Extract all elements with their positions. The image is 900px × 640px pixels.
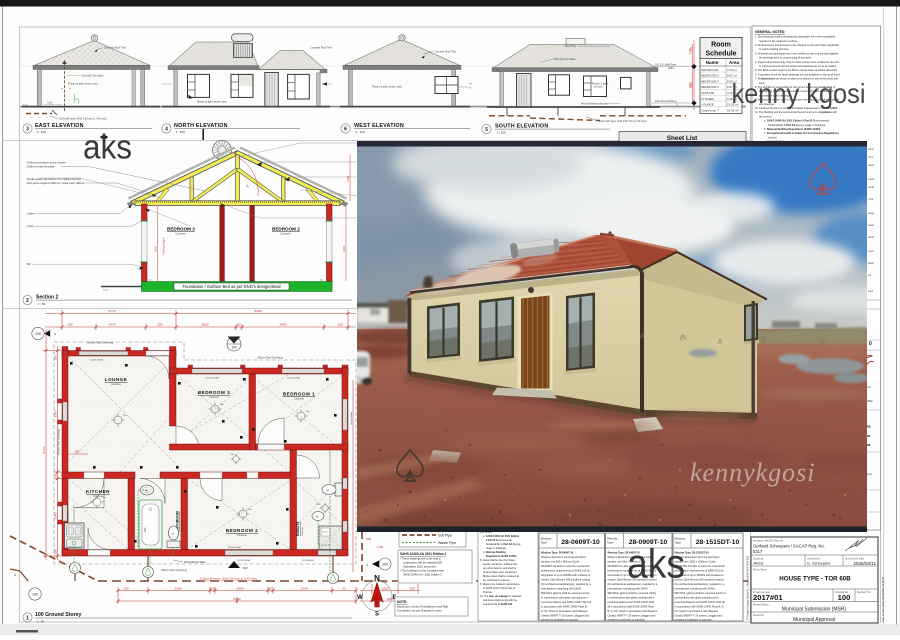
svg-text:any other defects, and shall b: any other defects, and shall be bbox=[483, 567, 517, 570]
svg-text:window, size 600 x 900mm (Code: window, size 600 x 900mm (Code: bbox=[541, 560, 580, 564]
svg-text:BEDROOM 2: BEDROOM 2 bbox=[272, 227, 300, 232]
svg-text:Practice.: Practice. bbox=[483, 591, 493, 594]
svg-text:3770: 3770 bbox=[109, 309, 116, 313]
svg-text:BEDROOM 2: BEDROOM 2 bbox=[226, 528, 258, 533]
svg-text:Wispeco Aluminium top hung alu: Wispeco Aluminium top hung aluminium bbox=[541, 555, 586, 559]
svg-text:1758: 1758 bbox=[346, 175, 350, 182]
svg-text:(Latest): (Latest) bbox=[768, 135, 777, 139]
svg-text:1 : 100: 1 : 100 bbox=[37, 130, 47, 134]
svg-text:to SANS 10137:2013 Code of: to SANS 10137:2013 Code of bbox=[483, 587, 515, 590]
svg-text:LOUNGE: LOUNGE bbox=[105, 377, 128, 382]
svg-text:2017#01: 2017#01 bbox=[753, 593, 783, 602]
svg-text:ENSUITE: ENSUITE bbox=[702, 91, 715, 95]
svg-text:Sheet List: Sheet List bbox=[667, 135, 698, 142]
svg-text:8. Glass shall be free from f: 8. Glass shall be free from flaws, bbox=[480, 559, 516, 562]
svg-text:requirements of SANS 613.: requirements of SANS 613. bbox=[483, 603, 513, 606]
svg-text:(2) 28-1515A1: (2) 28-1515A1 bbox=[205, 377, 220, 380]
svg-text:Sustainability & Part XA Ener: Sustainability & Part XA Energy usage in… bbox=[768, 123, 826, 127]
svg-text:etc.: etc. bbox=[868, 274, 872, 277]
svg-text:150: 150 bbox=[409, 586, 414, 590]
svg-text:all in accordance with SANS 10: all in accordance with SANS 10400 Parts bbox=[608, 605, 655, 609]
svg-text:3.75 m²: 3.75 m² bbox=[727, 68, 737, 72]
svg-text:manufacturer complying with SA: manufacturer complying with SANS bbox=[541, 587, 581, 591]
svg-text:Roof Tiles: Roof Tiles bbox=[565, 45, 577, 48]
svg-text:28-0609T-10) able to resist th: 28-0609T-10) able to resist the mechanic… bbox=[541, 564, 590, 568]
svg-text:JRGS: JRGS bbox=[753, 562, 764, 566]
svg-text:Plaster & paint as per spec.: Plaster & paint as per spec. bbox=[372, 86, 403, 89]
svg-text:Date & Time Stamp 2025/03/11: Date & Time Stamp 2025/03/11 21:48:25 bbox=[882, 576, 885, 622]
svg-text:LOUNGE: LOUNGE bbox=[702, 103, 714, 107]
svg-text:kenny kgosi: kenny kgosi bbox=[732, 78, 866, 109]
svg-text:sions: sions bbox=[868, 148, 874, 151]
svg-text:2280: 2280 bbox=[175, 587, 182, 591]
svg-text:Soil Pipe: Soil Pipe bbox=[438, 534, 452, 538]
svg-text:usage in buildings: usage in buildings bbox=[486, 547, 506, 550]
svg-text:Revision No.: Revision No. bbox=[857, 591, 871, 594]
svg-text:Municipal Approval: Municipal Approval bbox=[793, 617, 835, 623]
svg-text:100: 100 bbox=[32, 593, 38, 597]
svg-text:Gerhard Scheepers / SACAP Reg.: Gerhard Scheepers / SACAP Reg. No. bbox=[753, 544, 825, 549]
svg-text:N, XA. Fitted in accordance wi: N, XA. Fitted in accordance with Wispeco bbox=[541, 609, 588, 613]
svg-text:900: 900 bbox=[75, 450, 80, 454]
svg-text:150: 150 bbox=[67, 323, 72, 327]
svg-text:wings: wings bbox=[868, 212, 875, 215]
svg-text:Wirecoff Waste water pipe: Wirecoff Waste water pipe bbox=[581, 103, 609, 106]
svg-text:2: 2 bbox=[26, 298, 29, 304]
svg-text:5770: 5770 bbox=[42, 446, 46, 453]
svg-text:2. All dimensions and all lev: 2. All dimensions and all levels to be c… bbox=[755, 43, 840, 47]
svg-text:Concrete Roof Tiles: Concrete Roof Tiles bbox=[434, 51, 457, 54]
svg-text:10. The max. air leakage for w: 10. The max. air leakage for windows bbox=[480, 595, 522, 598]
svg-text:3300: 3300 bbox=[53, 410, 57, 417]
svg-text:WEST ELEVATION: WEST ELEVATION bbox=[354, 123, 404, 129]
svg-text:GENERAL NOTES:: GENERAL NOTES: bbox=[755, 30, 785, 34]
svg-text:Plaster & paint as per spec.: Plaster & paint as per spec. bbox=[197, 100, 228, 103]
svg-text:Shower: Shower bbox=[322, 532, 329, 534]
svg-text:levels: levels bbox=[868, 224, 875, 227]
svg-text:Concrete: Concrete bbox=[209, 396, 219, 399]
svg-text:Gutter: Gutter bbox=[27, 212, 35, 216]
svg-text:Waste Pipe: Waste Pipe bbox=[438, 541, 456, 545]
svg-text:© Google Country Owner ALL Pro: © Google Country Owner ALL Projects/2017… bbox=[747, 555, 750, 620]
svg-text:wind loads of up to 1500Pa wit: wind loads of up to 1500Pa with surfaces… bbox=[541, 573, 591, 577]
svg-text:28-1515DT-10: 28-1515DT-10 bbox=[696, 539, 740, 546]
svg-text:1 : 50: 1 : 50 bbox=[38, 302, 46, 306]
svg-text:noted: noted bbox=[868, 164, 875, 167]
svg-text:900: 900 bbox=[366, 537, 371, 541]
svg-text:BEDROOM 1: BEDROOM 1 bbox=[702, 74, 720, 78]
svg-text:r site: r site bbox=[868, 198, 874, 201]
svg-text:999:2013, glazing shall be exe: 999:2013, glazing shall be executed stri… bbox=[608, 591, 657, 595]
svg-text:Broken glass shall be replaced: Broken glass shall be replaced at bbox=[483, 575, 519, 578]
svg-text:KITCHEN: KITCHEN bbox=[86, 489, 110, 494]
svg-text:N: N bbox=[374, 574, 380, 583]
svg-text:(1) 28-0609t: (1) 28-0609t bbox=[302, 559, 314, 562]
svg-text:screwed to brickwork or concre: screwed to brickwork or concrete. bbox=[541, 618, 579, 622]
svg-text:5. The Brick course height to: 5. The Brick course height to be 85mm ex… bbox=[755, 68, 838, 72]
svg-text:999:2013, glazing shall be exe: 999:2013, glazing shall be executed stri… bbox=[541, 591, 590, 595]
svg-text:aks: aks bbox=[83, 129, 132, 167]
svg-text:3475: 3475 bbox=[109, 323, 116, 327]
svg-text:with joints lapped 150mm, fixe: with joints lapped 150mm, fixed over raf… bbox=[27, 181, 86, 185]
svg-text:SANS 10400-XA: 2021 Edition 2: SANS 10400-XA: 2021 Edition 2 bbox=[403, 573, 442, 577]
svg-text:6. A complete set of the late: 6. A complete set of the latest drawings… bbox=[755, 72, 841, 76]
svg-text:Foundation / Surface Bed as pe: Foundation / Surface Bed as per ENG's de… bbox=[182, 284, 280, 289]
svg-text:(1) 28-1515A: (1) 28-1515A bbox=[287, 377, 300, 380]
svg-text:Crealco 999/FT™ 28 system, plu: Crealco 999/FT™ 28 system, plugged and bbox=[541, 614, 589, 618]
svg-text:aks: aks bbox=[627, 541, 685, 587]
svg-text:BEDROOM 3: BEDROOM 3 bbox=[198, 390, 230, 395]
svg-text:100 Ground Storey: 100 Ground Storey bbox=[35, 612, 82, 618]
svg-text:Drawn by: Drawn by bbox=[753, 558, 764, 561]
svg-text:BEDROOM 2: BEDROOM 2 bbox=[702, 79, 720, 83]
svg-text:BEDROOM 3: BEDROOM 3 bbox=[702, 85, 720, 89]
svg-text:Type: Type bbox=[541, 541, 548, 545]
svg-text:Type: Type bbox=[607, 541, 614, 545]
svg-text:Sill: Sill bbox=[27, 262, 31, 266]
svg-text:specks, scratches, bubbles and: specks, scratches, bubbles and bbox=[483, 563, 518, 566]
svg-text:KITCHEN: KITCHEN bbox=[702, 97, 715, 101]
svg-text:a. SANS 10400-XA 2021 Edition: a. SANS 10400-XA 2021 Edition 2 Part B E… bbox=[764, 119, 829, 123]
svg-text:B, N, XA. Fitted in accordance: B, N, XA. Fitted in accordance with Wisp… bbox=[608, 609, 658, 613]
svg-text:300mm Roof Overhang: 300mm Roof Overhang bbox=[87, 342, 114, 345]
svg-text:in accordance with SANS 10400: in accordance with SANS 10400 Parts B, N… bbox=[675, 605, 725, 609]
svg-text:Concrete: Concrete bbox=[280, 232, 291, 236]
svg-text:1650: 1650 bbox=[382, 586, 389, 590]
svg-text:Municipal Submission (MSR): Municipal Submission (MSR) bbox=[782, 607, 847, 613]
svg-text:9. Glass to be marked in acco: 9. Glass to be marked in accordance bbox=[480, 583, 520, 586]
svg-text:conjunction with the attached: conjunction with the attached EE bbox=[403, 561, 442, 565]
svg-text:100: 100 bbox=[35, 332, 41, 336]
svg-text:3: 3 bbox=[26, 126, 29, 132]
svg-text:3. All levels and dimensions: 3. All levels and dimensions are to be v… bbox=[755, 51, 839, 55]
svg-text:Concrete: Concrete bbox=[111, 383, 121, 386]
svg-text:100: 100 bbox=[382, 563, 388, 567]
svg-text:kennykgosi: kennykgosi bbox=[690, 458, 816, 487]
svg-text:2463: 2463 bbox=[690, 81, 694, 88]
svg-text:Concrete: Concrete bbox=[175, 232, 186, 236]
svg-text:Crealco 999/FT™ 28 system, plu: Crealco 999/FT™ 28 system, plugged and bbox=[608, 614, 656, 618]
svg-text:Grand total: 7: Grand total: 7 bbox=[702, 108, 720, 112]
svg-text:1 : 50: 1 : 50 bbox=[37, 620, 45, 624]
svg-text:• This building is to be comp: • This building is to be compliant with bbox=[400, 569, 444, 573]
svg-text:manufacturer complying with SA: manufacturer complying with SANS bbox=[608, 587, 648, 591]
svg-text:Concrete: Concrete bbox=[181, 522, 184, 532]
svg-text:150: 150 bbox=[53, 355, 57, 360]
svg-text:to commencement with the works: to commencement with the works and drawi… bbox=[759, 64, 837, 68]
svg-text:Issued for: Issued for bbox=[753, 614, 764, 617]
svg-text:works: works bbox=[868, 186, 875, 189]
svg-text:Section 2: Section 2 bbox=[36, 295, 58, 301]
svg-text:SANS 10400-XA 2021 Edition 2: SANS 10400-XA 2021 Edition 2 bbox=[400, 552, 447, 556]
svg-text:S: S bbox=[14, 573, 16, 577]
svg-text:to match existing structure.: to match existing structure. bbox=[759, 47, 790, 51]
svg-text:screwed to brickwork or concre: screwed to brickwork or concrete. bbox=[608, 618, 646, 622]
svg-text:(1) 28-0909t: (1) 28-0909t bbox=[67, 510, 70, 522]
svg-text:spec': spec' bbox=[867, 473, 873, 476]
svg-text:90: 90 bbox=[53, 473, 57, 477]
svg-text:Name: Name bbox=[706, 60, 719, 65]
svg-text:2025/03/11: 2025/03/11 bbox=[853, 561, 876, 566]
svg-text:110mmØ sewer (Fall 1:60 min &: 110mmØ sewer (Fall 1:60 min & 1:40 max) bbox=[200, 577, 257, 581]
svg-text:as spec.: as spec. bbox=[594, 86, 604, 89]
svg-text:in conformance with glass manu: in conformance with glass manufacturer's bbox=[541, 596, 589, 600]
svg-text:Lintel: Lintel bbox=[27, 224, 35, 228]
svg-text:to be: to be bbox=[868, 156, 874, 159]
svg-text:1758: 1758 bbox=[690, 46, 694, 53]
svg-text:Calculation 2022 document.: Calculation 2022 document. bbox=[403, 565, 437, 569]
svg-text:Crealco 999/FT™ 28 system, plu: Crealco 999/FT™ 28 system, plugged and bbox=[675, 614, 723, 618]
svg-text:Concrete Roof Tiles: Concrete Roof Tiles bbox=[310, 47, 333, 50]
svg-text:and doors shall comply with th: and doors shall comply with the bbox=[483, 599, 518, 602]
svg-text:1:50: 1:50 bbox=[377, 545, 383, 549]
svg-text:4. Figured dimensions only ma: 4. Figured dimensions only may be used a… bbox=[755, 60, 840, 64]
svg-text:BEDROOM 1: BEDROOM 1 bbox=[283, 392, 315, 397]
svg-text:150: 150 bbox=[337, 323, 342, 327]
svg-text:in accordance with SANS 10400: in accordance with SANS 10400 Parts B, bbox=[541, 605, 588, 609]
svg-text:S: S bbox=[375, 612, 379, 618]
svg-text:2400: 2400 bbox=[153, 245, 157, 252]
svg-text:8.87 m²: 8.87 m² bbox=[727, 74, 737, 78]
svg-text:performance requirements of SA: performance requirements of SANS 613 for bbox=[541, 569, 590, 573]
svg-text:Room: Room bbox=[711, 42, 731, 49]
svg-text:a. SANS 10400-XA 2021 Edition: a. SANS 10400-XA 2021 Edition bbox=[483, 535, 520, 538]
svg-text:110mmØ sewer (Fall 1:60 min &: 110mmØ sewer (Fall 1:60 min & 1:40 max) bbox=[59, 118, 107, 121]
svg-text:b. National Building: b. National Building bbox=[483, 551, 506, 554]
svg-text:G. Scheepers: G. Scheepers bbox=[807, 562, 830, 566]
svg-text:2400: 2400 bbox=[342, 245, 346, 252]
svg-text:(for architectural application: (for architectural applications), suppli… bbox=[541, 582, 591, 586]
svg-text:BEDROOM 3: BEDROOM 3 bbox=[167, 227, 195, 232]
svg-text:(1) 28-1914A: (1) 28-1914A bbox=[350, 412, 353, 425]
svg-text:135mm thick Aerolite: 135mm thick Aerolite bbox=[27, 165, 55, 169]
svg-text:Foundation as per Engineer's s: Foundation as per Engineer's spec. bbox=[397, 609, 443, 613]
svg-text:in conformance with glass manu: in conformance with glass manufacturer's bbox=[608, 596, 656, 600]
svg-text:• These drawings are to be re: • These drawings are to be read in bbox=[400, 557, 441, 561]
svg-text:300mm Roof Overhang: 300mm Roof Overhang bbox=[161, 569, 188, 572]
svg-text:5: 5 bbox=[485, 127, 488, 133]
svg-text:recommendations and SANS 10137: recommendations and SANS 10137:2011 all bbox=[541, 600, 592, 604]
svg-text:screwed to brickwork or concre: screwed to brickwork or concrete. bbox=[675, 618, 713, 622]
svg-text:2460: 2460 bbox=[280, 323, 287, 327]
svg-text:6: 6 bbox=[344, 126, 347, 132]
svg-text:reported to the architect in w: reported to the architect in writing. bbox=[759, 39, 798, 43]
svg-text:c. Occupational Health & Safe: c. Occupational Health & Safety Act Cons… bbox=[764, 131, 839, 135]
svg-text:recommendations and SANS 10137: recommendations and SANS 10137:2011 bbox=[608, 600, 655, 604]
svg-text:bath: bath bbox=[144, 527, 147, 532]
svg-text:N.G.L: N.G.L bbox=[103, 290, 109, 292]
svg-text:2280: 2280 bbox=[53, 512, 57, 519]
svg-text:d and: d and bbox=[868, 178, 875, 181]
svg-text:BATHROOM: BATHROOM bbox=[702, 68, 719, 72]
svg-text:(1) 28-1515A: (1) 28-1515A bbox=[90, 359, 103, 362]
svg-text:28-0609T-10: 28-0609T-10 bbox=[561, 539, 600, 546]
svg-text:5420: 5420 bbox=[234, 597, 241, 601]
svg-text:110mmØ Vent Valve: 110mmØ Vent Valve bbox=[553, 58, 576, 61]
svg-text:5480: 5480 bbox=[255, 309, 262, 313]
svg-text:ained: ained bbox=[868, 262, 875, 265]
svg-text:1 : 100: 1 : 100 bbox=[356, 130, 366, 134]
svg-text:Ceiling Height: Ceiling Height bbox=[162, 237, 166, 255]
svg-text:Regulations (SANS 10400): Regulations (SANS 10400) bbox=[486, 555, 517, 558]
svg-text:1: 1 bbox=[26, 615, 29, 621]
svg-text:Plaster & paint as per spec.: Plaster & paint as per spec. bbox=[68, 83, 99, 86]
svg-text:4: 4 bbox=[165, 126, 168, 132]
svg-text:SOUTH ELEVATION: SOUTH ELEVATION bbox=[495, 124, 548, 130]
svg-text:Schedule: Schedule bbox=[705, 51, 736, 58]
svg-text:999:2013, glazing shall be exe: 999:2013, glazing shall be executed stri… bbox=[675, 591, 727, 595]
svg-text:Concrete: Concrete bbox=[237, 534, 247, 537]
svg-text:5317: 5317 bbox=[753, 549, 763, 554]
svg-text:2340: 2340 bbox=[301, 587, 308, 591]
svg-text:ctural: ctural bbox=[868, 236, 874, 239]
svg-text:100: 100 bbox=[838, 593, 851, 602]
svg-text:11. The Building and the const: 11. The Building and the construction th… bbox=[755, 110, 838, 114]
svg-text:100 Ground Storey: 100 Ground Storey bbox=[655, 100, 677, 103]
svg-text:Project Status: Project Status bbox=[753, 604, 769, 607]
svg-text:EAST ELEVATION: EAST ELEVATION bbox=[35, 123, 84, 129]
svg-text:50: 50 bbox=[342, 587, 346, 591]
svg-text:Area: Area bbox=[729, 60, 740, 65]
svg-text:1 : 100: 1 : 100 bbox=[497, 131, 507, 135]
svg-text:Concrete: Concrete bbox=[294, 398, 304, 401]
svg-text:100: 100 bbox=[231, 345, 237, 349]
svg-text:110mmØ Vent Valve: 110mmØ Vent Valve bbox=[81, 75, 104, 78]
svg-text:Sustainability & Part XA Ener: Sustainability & Part XA Energy bbox=[486, 543, 521, 546]
svg-text:receive 15μm Bronze 543 anodis: receive 15μm Bronze 543 anodised coating bbox=[541, 578, 591, 582]
svg-text:0: 0 bbox=[869, 341, 872, 347]
svg-text:wb: wb bbox=[145, 489, 149, 493]
svg-text:Concrete Roof Tiles: Concrete Roof Tiles bbox=[104, 47, 127, 50]
svg-text:1 : 100: 1 : 100 bbox=[176, 130, 186, 134]
svg-text:l vent: l vent bbox=[868, 250, 874, 253]
svg-text:2463: 2463 bbox=[668, 67, 674, 70]
svg-text:Architect / SACAP Reg. No: Architect / SACAP Reg. No bbox=[753, 540, 784, 543]
svg-text:Window Type: 28-0609T-10: Window Type: 28-0609T-10 bbox=[541, 551, 574, 555]
svg-text:(2) 28-1515A: (2) 28-1515A bbox=[228, 546, 241, 549]
svg-text:cleaned down upon completion.: cleaned down upon completion. bbox=[483, 571, 518, 574]
svg-text:ENSUITE: ENSUITE bbox=[296, 521, 300, 536]
svg-text:300mm Roof Overhang: 300mm Roof Overhang bbox=[58, 428, 61, 455]
svg-text:NOTE:: NOTE: bbox=[397, 600, 408, 604]
svg-text:S: S bbox=[54, 332, 56, 336]
svg-text:150: 150 bbox=[157, 323, 162, 327]
svg-text:W: W bbox=[357, 595, 363, 601]
svg-text:Gully: Gully bbox=[47, 102, 53, 105]
svg-text:Checked by: Checked by bbox=[807, 558, 821, 561]
svg-text:300mm Roof Overhang: 300mm Roof Overhang bbox=[257, 357, 284, 360]
svg-text:manufacturer complying with SA: manufacturer complying with SANS bbox=[675, 587, 715, 591]
svg-text:110mmØ sewer (Fall 1:60 min &: 110mmØ sewer (Fall 1:60 min & 1:40 max) bbox=[599, 120, 647, 123]
svg-text:spec: spec bbox=[868, 290, 874, 293]
svg-text:150: 150 bbox=[123, 587, 128, 591]
svg-text:(1) 28-1515A: (1) 28-1515A bbox=[237, 559, 250, 562]
svg-text:HOUSE TYPE - TOR 60B: HOUSE TYPE - TOR 60B bbox=[779, 576, 851, 583]
svg-text:150: 150 bbox=[53, 549, 57, 554]
svg-text:53.43 m²: 53.43 m² bbox=[727, 108, 738, 112]
svg-text:the current:: the current: bbox=[759, 114, 772, 118]
svg-text:recommendations and SANS 10137: recommendations and SANS 10137:2011 all bbox=[675, 600, 726, 604]
svg-text:b. National Building Regulati: b. National Building Regulations (SANS 1… bbox=[764, 127, 820, 131]
svg-text:2850: 2850 bbox=[202, 323, 209, 327]
svg-text:NORTH ELEVATION: NORTH ELEVATION bbox=[174, 123, 228, 129]
svg-text:Sheet Name: Sheet Name bbox=[753, 569, 768, 572]
svg-text:90: 90 bbox=[237, 323, 241, 327]
svg-text:Concrete: Concrete bbox=[301, 526, 304, 536]
svg-text:conformance with glass manufac: conformance with glass manufacturer's bbox=[675, 596, 720, 600]
svg-text:2 Part B Environmental: 2 Part B Environmental bbox=[486, 539, 512, 542]
svg-text:XA. Fitted in accordance with: XA. Fitted in accordance with Wispeco bbox=[675, 609, 719, 613]
svg-text:N.G.L: N.G.L bbox=[23, 105, 29, 107]
svg-text:1850: 1850 bbox=[237, 587, 244, 591]
svg-text:the contractor's expense.: the contractor's expense. bbox=[483, 579, 510, 582]
svg-text:110mmØ Vent Valve: 110mmØ Vent Valve bbox=[184, 561, 206, 564]
svg-text:the drawings prior to commenci: the drawings prior to commencing of any … bbox=[759, 56, 812, 60]
svg-text:MW: MW bbox=[243, 566, 248, 570]
svg-text:1. Discrepancies and/or contr: 1. Discrepancies and/or contradicting in… bbox=[755, 35, 836, 39]
